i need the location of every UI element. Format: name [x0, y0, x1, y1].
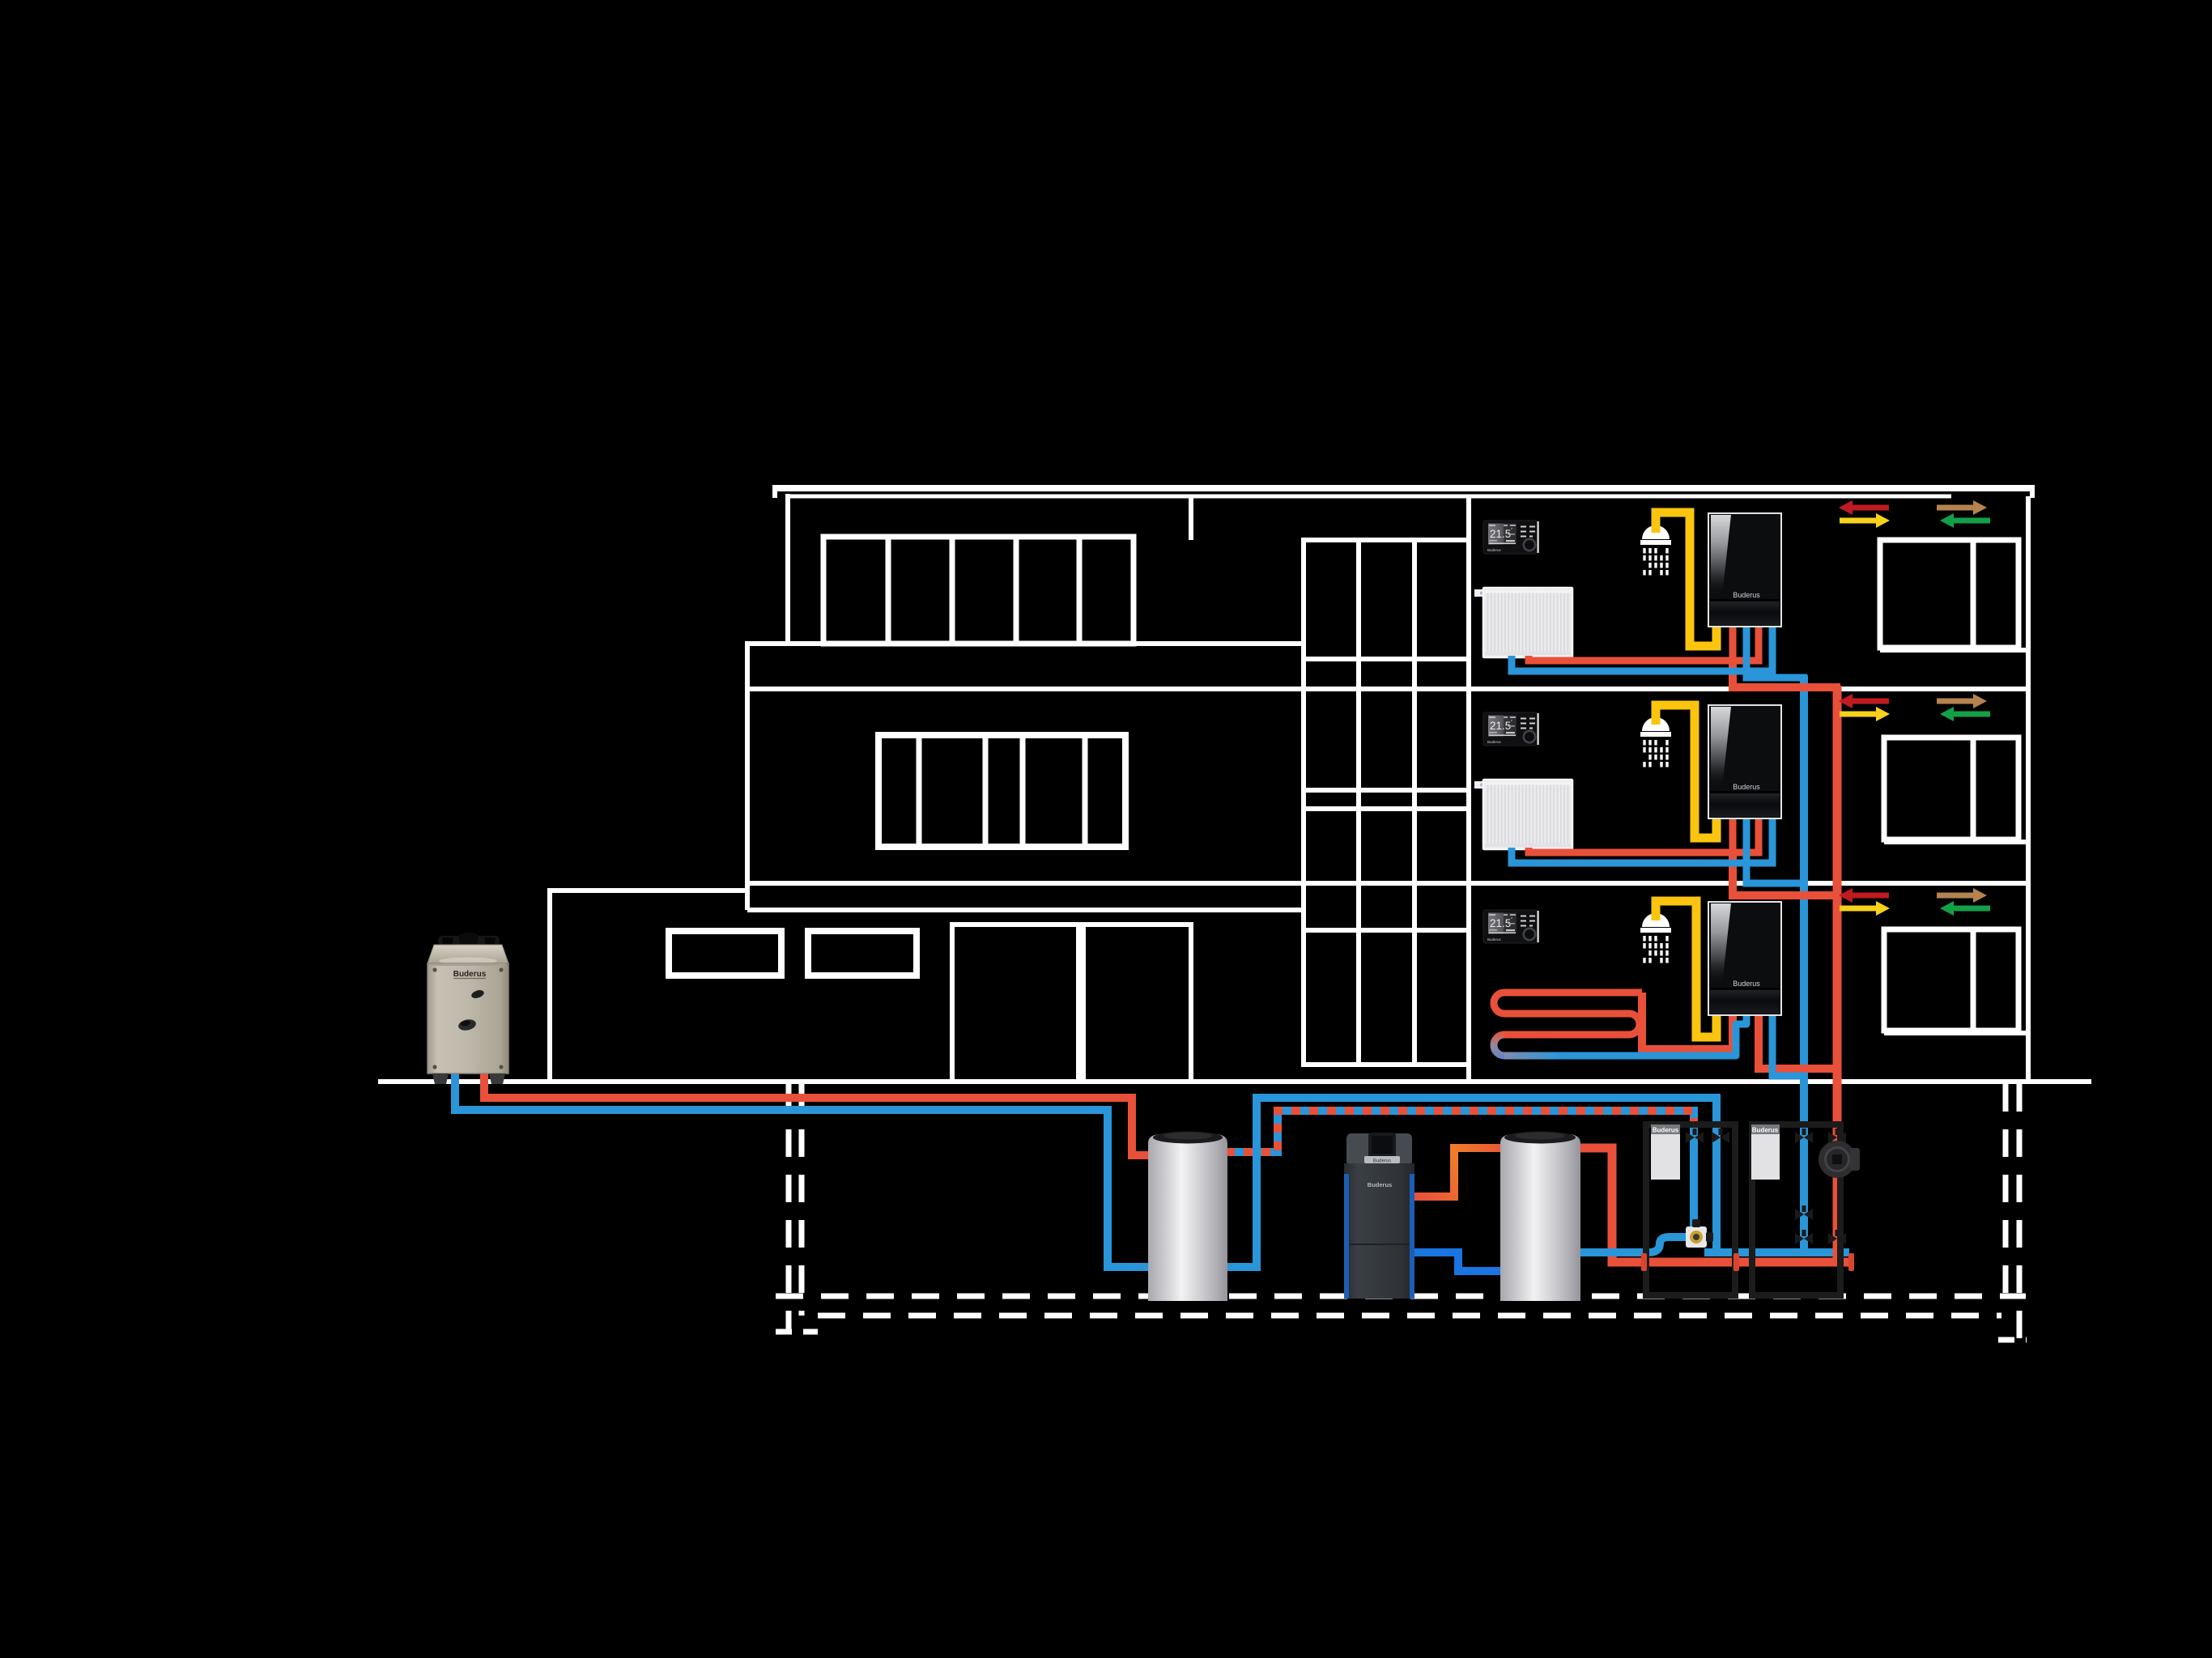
- svg-text:Buderus: Buderus: [1487, 548, 1502, 552]
- svg-text:°: °: [1511, 528, 1512, 533]
- svg-text:Buderus: Buderus: [1733, 591, 1760, 599]
- svg-text:Buderus: Buderus: [1752, 1127, 1779, 1134]
- svg-text:Buderus: Buderus: [1487, 740, 1502, 744]
- svg-text:Buderus: Buderus: [1653, 1127, 1679, 1134]
- svg-text:°: °: [1511, 917, 1512, 922]
- svg-text:Buderus: Buderus: [1487, 937, 1502, 942]
- svg-text:Buderus: Buderus: [1733, 980, 1760, 988]
- svg-text:°: °: [1511, 720, 1512, 725]
- svg-text:Buderus: Buderus: [1368, 1181, 1392, 1188]
- svg-text:Buderus: Buderus: [1373, 1159, 1391, 1164]
- svg-text:Buderus: Buderus: [453, 970, 487, 979]
- svg-text:Buderus: Buderus: [1733, 783, 1760, 791]
